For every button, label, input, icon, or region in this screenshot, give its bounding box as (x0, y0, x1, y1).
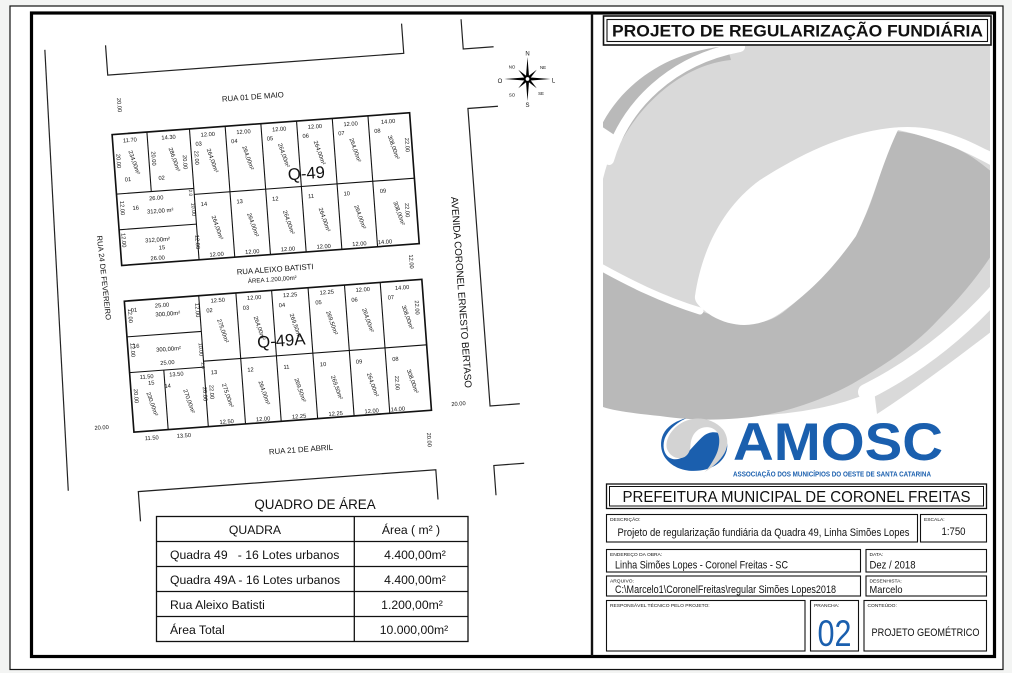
svg-text:12.00: 12.00 (236, 129, 251, 136)
svg-text:14.00: 14.00 (391, 406, 406, 413)
svg-text:Quadra 49A - 16 Lotes urbanos: Quadra 49A - 16 Lotes urbanos (170, 573, 340, 587)
svg-text:08: 08 (392, 357, 399, 363)
svg-text:1.200,00m²: 1.200,00m² (381, 598, 443, 612)
svg-text:PREFEITURA MUNICIPAL DE CORONE: PREFEITURA MUNICIPAL DE CORONEL FREITAS (623, 489, 971, 506)
svg-text:20.00: 20.00 (425, 432, 432, 447)
svg-text:Dez / 2018: Dez / 2018 (870, 560, 916, 572)
svg-text:12.25: 12.25 (319, 290, 334, 297)
svg-text:O: O (498, 79, 503, 85)
svg-text:10.00: 10.00 (189, 203, 196, 217)
svg-text:NO: NO (509, 65, 516, 70)
svg-text:S: S (525, 103, 529, 109)
svg-text:04: 04 (279, 303, 287, 310)
svg-text:12.50: 12.50 (210, 298, 225, 305)
svg-text:20.00: 20.00 (451, 401, 466, 408)
svg-text:12.00: 12.00 (355, 287, 370, 294)
svg-text:11.50: 11.50 (145, 435, 159, 442)
svg-text:20.00: 20.00 (114, 154, 121, 169)
svg-text:10: 10 (320, 362, 327, 368)
svg-text:Quadra 49 - 16 Lotes urbanos: Quadra 49 - 16 Lotes urbanos (170, 548, 339, 562)
svg-text:05: 05 (315, 300, 322, 306)
svg-text:12.00: 12.00 (272, 126, 287, 133)
svg-text:PRANCHA:: PRANCHA: (814, 603, 839, 609)
svg-text:05: 05 (267, 136, 274, 142)
svg-text:13.50: 13.50 (169, 372, 184, 379)
svg-text:20.00: 20.00 (201, 387, 208, 402)
svg-text:01: 01 (125, 177, 132, 183)
svg-text:22.00: 22.00 (393, 376, 400, 391)
svg-text:12.50: 12.50 (219, 419, 234, 426)
svg-text:08: 08 (374, 129, 381, 135)
svg-text:20.00: 20.00 (149, 151, 156, 166)
svg-text:07: 07 (338, 131, 345, 137)
svg-text:12.00: 12.00 (128, 343, 135, 358)
svg-text:Área ( m² ): Área ( m² ) (382, 522, 440, 537)
svg-text:RESPONSÁVEL TÉCNICO PELO PROJE: RESPONSÁVEL TÉCNICO PELO PROJETO: (610, 602, 710, 609)
svg-text:ESCALA:: ESCALA: (924, 517, 945, 523)
svg-text:03: 03 (195, 141, 202, 147)
svg-text:12.00: 12.00 (119, 233, 126, 248)
svg-text:SO: SO (509, 93, 516, 98)
svg-text:11: 11 (308, 194, 314, 200)
svg-text:10: 10 (343, 191, 350, 197)
svg-text:PROJETO GEOMÉTRICO: PROJETO GEOMÉTRICO (872, 626, 980, 639)
svg-text:12.00: 12.00 (118, 201, 125, 216)
svg-text:13.50: 13.50 (177, 433, 192, 440)
svg-text:14.00: 14.00 (378, 239, 393, 246)
svg-text:14: 14 (164, 383, 172, 390)
svg-text:N: N (525, 52, 529, 58)
svg-text:02: 02 (206, 308, 213, 314)
svg-text:11: 11 (283, 365, 289, 371)
svg-text:SE: SE (538, 91, 544, 96)
svg-text:QUADRA: QUADRA (229, 523, 282, 537)
svg-text:12.00: 12.00 (193, 303, 200, 318)
svg-text:22.00: 22.00 (207, 385, 214, 400)
svg-text:26.00: 26.00 (150, 255, 165, 262)
svg-text:12.00: 12.00 (407, 254, 414, 269)
svg-text:C:\Marcelo1\CoronelFreitas\reg: C:\Marcelo1\CoronelFreitas\regular Simõe… (615, 584, 836, 596)
svg-text:20.00: 20.00 (94, 425, 109, 432)
svg-text:10.000,00m²: 10.000,00m² (380, 623, 448, 637)
svg-text:06: 06 (302, 133, 309, 139)
svg-text:PROJETO DE REGULARIZAÇÃO FUNDI: PROJETO DE REGULARIZAÇÃO FUNDIÁRIA (612, 21, 983, 41)
svg-text:Marcelo: Marcelo (870, 584, 903, 596)
svg-text:12.25: 12.25 (283, 292, 298, 299)
svg-text:06: 06 (351, 297, 358, 303)
svg-text:26.00: 26.00 (149, 195, 164, 202)
svg-text:22.00: 22.00 (413, 300, 420, 315)
svg-text:ASSOCIAÇÃO DOS MUNICÍPIOS DO O: ASSOCIAÇÃO DOS MUNICÍPIOS DO OESTE DE SA… (733, 470, 931, 479)
svg-text:Área Total: Área Total (170, 622, 225, 637)
svg-text:22.00: 22.00 (192, 150, 199, 165)
svg-text:DESCRIÇÃO:: DESCRIÇÃO: (610, 516, 640, 523)
svg-text:12.00: 12.00 (316, 244, 331, 251)
svg-text:1:750: 1:750 (942, 526, 966, 538)
svg-text:12.00: 12.00 (193, 235, 200, 250)
svg-text:22.00: 22.00 (403, 203, 410, 218)
svg-text:2.0: 2.0 (200, 362, 205, 369)
svg-text:QUADRO DE ÁREA: QUADRO DE ÁREA (254, 497, 375, 512)
svg-text:16: 16 (132, 206, 139, 212)
svg-text:14: 14 (201, 202, 209, 209)
svg-text:14.30: 14.30 (161, 135, 176, 142)
svg-text:15: 15 (148, 381, 155, 387)
svg-text:12: 12 (272, 196, 279, 202)
svg-text:09: 09 (356, 359, 363, 365)
svg-text:07: 07 (388, 295, 395, 301)
svg-text:4.400,00m²: 4.400,00m² (384, 548, 446, 562)
svg-text:12.00: 12.00 (364, 408, 379, 415)
svg-text:12.00: 12.00 (201, 132, 216, 139)
svg-text:Rua Aleixo Batisti: Rua Aleixo Batisti (170, 598, 265, 612)
svg-text:12.00: 12.00 (352, 241, 367, 248)
svg-text:12.00: 12.00 (247, 295, 262, 302)
svg-text:DATA:: DATA: (870, 552, 884, 558)
svg-text:12.25: 12.25 (328, 411, 343, 418)
svg-text:12.00: 12.00 (126, 308, 133, 323)
svg-text:12.00: 12.00 (209, 252, 224, 259)
svg-text:Projeto de regularização fundi: Projeto de regularização fundiária da Qu… (618, 527, 910, 539)
svg-text:10.00: 10.00 (197, 343, 204, 357)
svg-text:12.00: 12.00 (256, 416, 271, 423)
svg-text:ENDEREÇO DA OBRA:: ENDEREÇO DA OBRA: (610, 552, 662, 558)
svg-text:09: 09 (380, 189, 387, 195)
svg-text:12.00: 12.00 (343, 121, 358, 128)
svg-text:13: 13 (236, 199, 243, 205)
svg-text:22.00: 22.00 (403, 138, 410, 153)
svg-text:12.00: 12.00 (281, 246, 296, 253)
svg-text:Linha Simões Lopes - Coronel F: Linha Simões Lopes - Coronel Freitas - S… (615, 560, 788, 572)
svg-text:2.0: 2.0 (188, 189, 193, 196)
svg-text:13: 13 (211, 370, 218, 376)
svg-text:12.25: 12.25 (292, 414, 307, 421)
svg-text:11.70: 11.70 (123, 137, 137, 144)
svg-text:02: 02 (158, 175, 165, 181)
svg-text:20.00: 20.00 (132, 389, 139, 404)
svg-text:03: 03 (243, 305, 250, 311)
svg-text:02: 02 (818, 613, 852, 654)
svg-text:4.400,00m²: 4.400,00m² (384, 573, 446, 587)
svg-text:CONTEÚDO:: CONTEÚDO: (868, 602, 897, 609)
svg-text:14.00: 14.00 (395, 285, 410, 292)
svg-text:20.00: 20.00 (115, 98, 122, 113)
svg-text:20.00: 20.00 (181, 155, 188, 170)
svg-text:14.00: 14.00 (381, 119, 396, 126)
svg-text:NE: NE (540, 65, 546, 70)
svg-text:04: 04 (231, 139, 239, 146)
svg-text:AMOSC: AMOSC (733, 413, 943, 472)
svg-text:25.00: 25.00 (160, 360, 175, 367)
svg-text:12.00: 12.00 (308, 124, 323, 131)
svg-text:12: 12 (247, 367, 254, 373)
svg-text:25.00: 25.00 (155, 303, 170, 310)
svg-text:15: 15 (159, 245, 166, 251)
svg-text:12.00: 12.00 (245, 249, 260, 256)
